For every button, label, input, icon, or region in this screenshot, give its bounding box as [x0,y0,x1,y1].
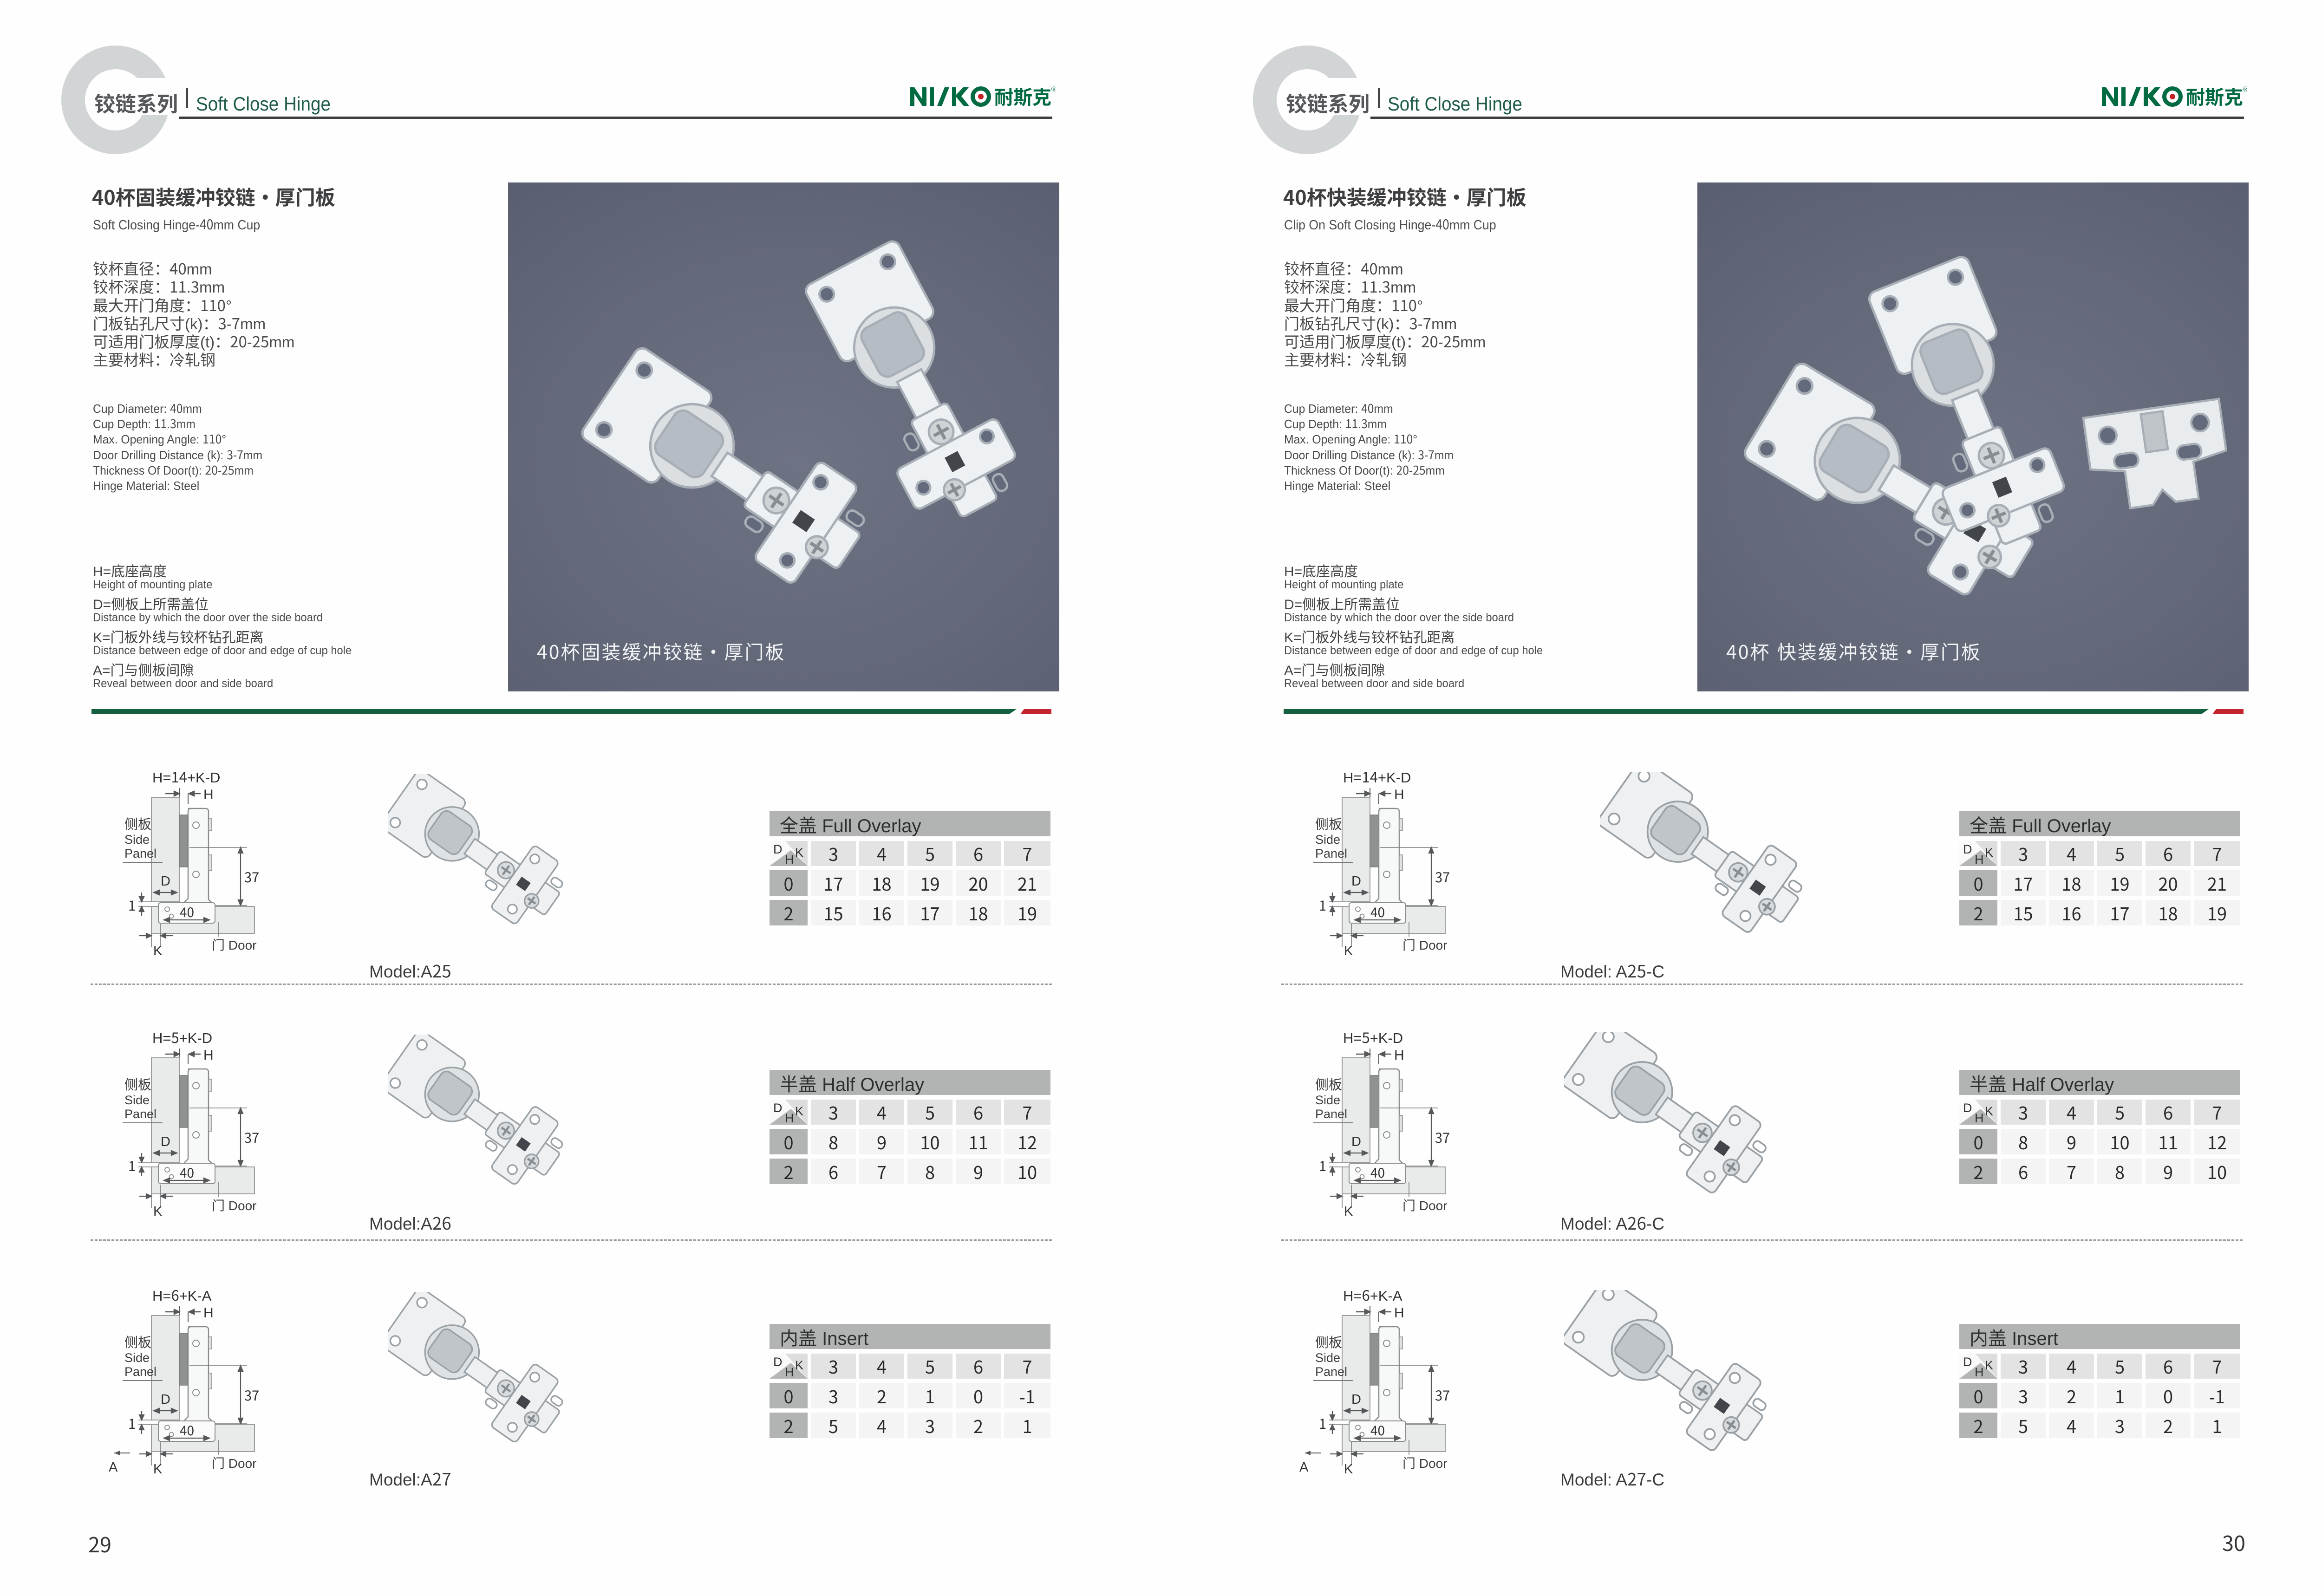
svg-text:Panel: Panel [1315,843,1347,861]
svg-text:K: K [795,1104,803,1118]
svg-text:K: K [1344,1458,1353,1478]
svg-text:H: H [1975,1111,1984,1125]
svg-text:D: D [1351,870,1361,890]
svg-text:D: D [773,1355,783,1369]
svg-text:H: H [1975,1365,1984,1379]
svg-text:H: H [203,1301,214,1322]
svg-text:1: 1 [128,1414,136,1433]
svg-text:H: H [1394,783,1404,803]
svg-text:门 Door: 门 Door [212,1196,256,1214]
svg-text:H: H [1394,1301,1404,1322]
svg-text:37: 37 [1435,867,1450,886]
svg-text:H: H [1975,853,1984,866]
svg-text:D: D [161,1131,170,1150]
svg-text:H=6+K-A: H=6+K-A [1343,1284,1402,1305]
svg-text:K: K [1344,940,1353,959]
svg-text:1: 1 [128,1156,136,1175]
svg-text:40: 40 [1370,903,1385,921]
svg-text:®: ® [2243,85,2247,94]
svg-text:门 Door: 门 Door [1402,935,1447,954]
svg-text:1: 1 [128,895,136,915]
svg-text:K: K [153,1200,163,1220]
svg-text:耐斯克: 耐斯克 [994,85,1051,108]
svg-text:Panel: Panel [124,1361,157,1380]
svg-text:门 Door: 门 Door [212,1453,256,1472]
svg-text:Panel: Panel [124,843,157,861]
svg-text:D: D [773,842,783,856]
svg-text:门 Door: 门 Door [212,935,256,954]
svg-text:门 Door: 门 Door [1402,1196,1447,1214]
svg-text:H: H [203,783,214,803]
svg-text:D: D [1963,842,1972,856]
svg-text:1: 1 [1319,895,1326,915]
svg-text:H: H [1394,1043,1404,1064]
svg-text:耐斯克: 耐斯克 [2186,85,2243,108]
svg-text:A: A [1299,1456,1309,1476]
svg-text:®: ® [1051,85,1056,94]
svg-text:D: D [1351,1388,1361,1408]
svg-text:40: 40 [1370,1163,1385,1182]
svg-text:1: 1 [1319,1414,1326,1433]
svg-text:H: H [785,1365,794,1379]
svg-text:K: K [795,846,803,860]
svg-text:D: D [1963,1355,1972,1369]
svg-text:门 Door: 门 Door [1402,1453,1447,1472]
svg-text:A: A [109,1456,118,1476]
svg-text:H: H [785,853,794,866]
svg-text:D: D [773,1101,783,1115]
svg-text:Panel: Panel [1315,1104,1347,1122]
svg-text:37: 37 [244,1385,259,1405]
svg-text:40: 40 [180,1421,194,1440]
svg-text:K: K [1344,1200,1353,1220]
svg-text:37: 37 [244,1127,259,1147]
svg-text:D: D [161,1388,170,1408]
svg-text:H=6+K-A: H=6+K-A [152,1284,212,1305]
svg-text:D: D [1351,1131,1361,1150]
svg-text:K: K [153,1458,163,1478]
svg-text:K: K [153,940,163,959]
svg-text:37: 37 [1435,1127,1450,1147]
svg-text:37: 37 [1435,1385,1450,1405]
svg-text:D: D [1963,1101,1972,1115]
svg-text:D: D [161,870,170,890]
svg-text:40: 40 [180,1163,194,1182]
svg-text:K: K [1985,846,1993,860]
svg-text:K: K [795,1358,803,1372]
svg-text:40: 40 [1370,1421,1385,1440]
svg-text:Panel: Panel [1315,1361,1347,1380]
svg-text:40: 40 [180,903,194,921]
svg-text:Panel: Panel [124,1104,157,1122]
svg-text:37: 37 [244,867,259,886]
svg-text:K: K [1985,1104,1993,1118]
svg-text:H: H [785,1111,794,1125]
svg-text:H: H [203,1043,214,1064]
svg-text:K: K [1985,1358,1993,1372]
svg-text:1: 1 [1319,1156,1326,1175]
